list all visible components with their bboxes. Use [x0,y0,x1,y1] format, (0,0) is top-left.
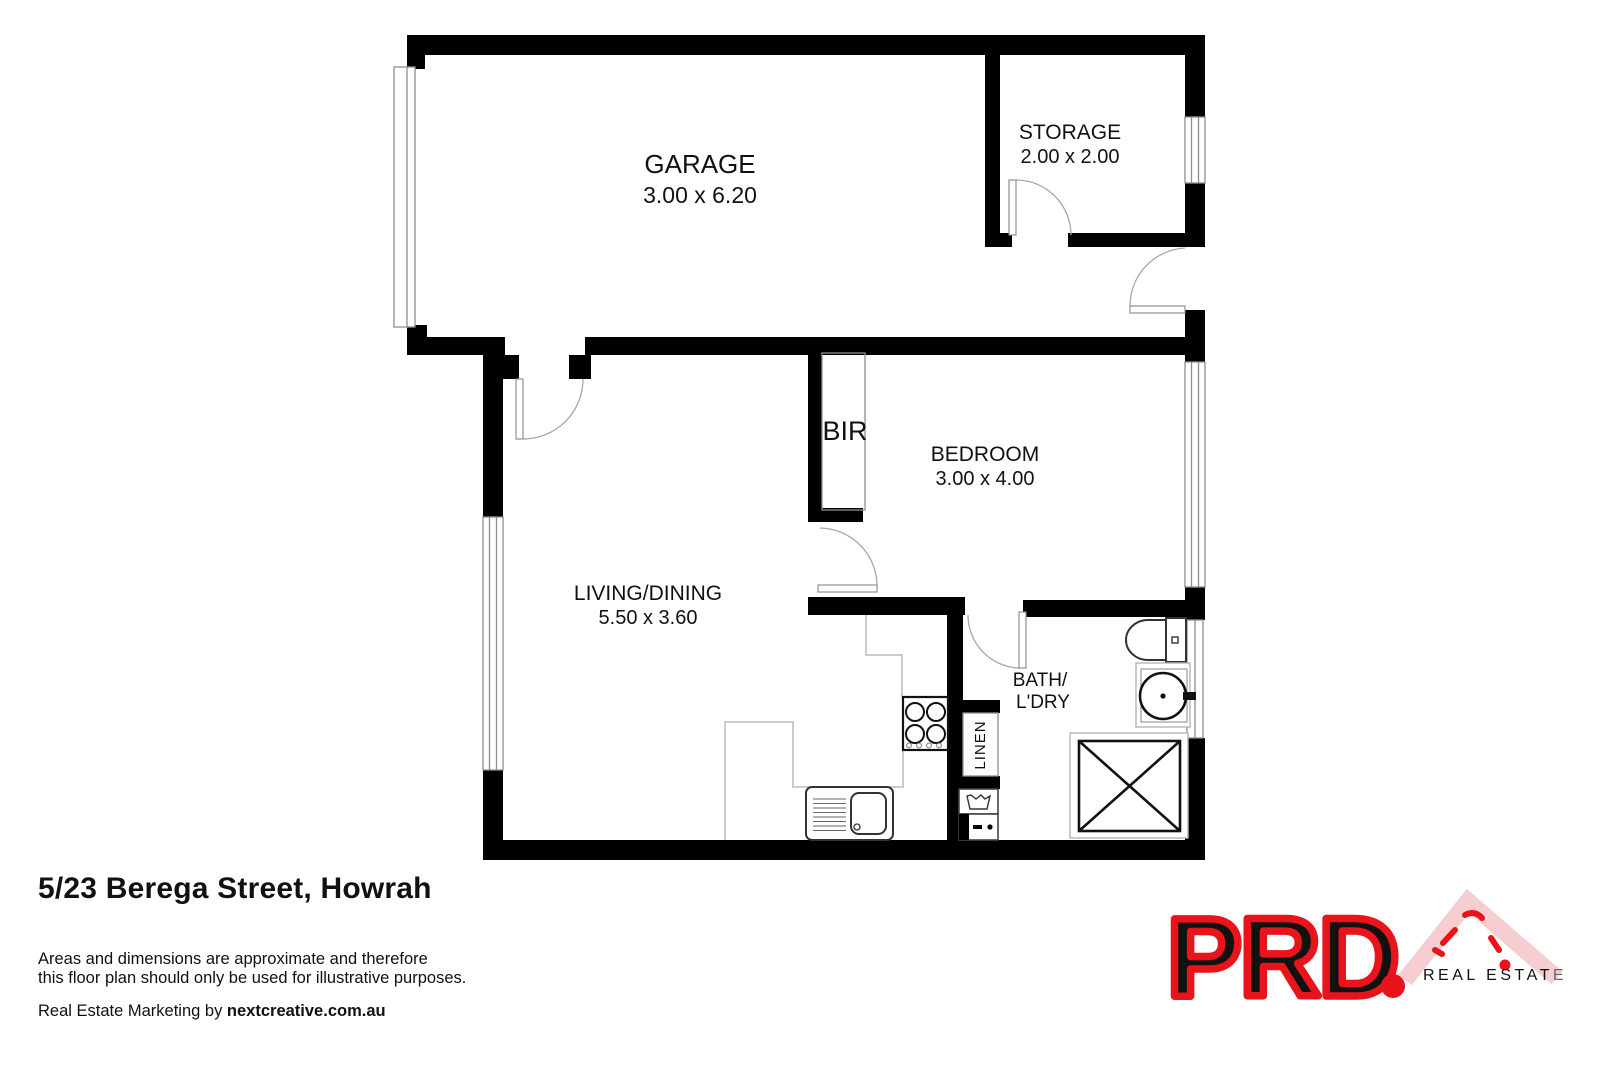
bath-label-line1: BATH/ [1013,670,1068,691]
storage-window [1185,117,1205,183]
laundry-trough-icon [959,789,998,814]
toilet-icon [1126,618,1186,662]
wall-divider-right [585,337,1205,355]
garage-door [394,67,415,327]
marketing-credit: Real Estate Marketing by nextcreative.co… [38,1002,598,1021]
cooktop-icon [903,697,948,750]
bedroom-window [1185,362,1205,587]
prd-logo: PRD REAL ESTATE [1165,888,1585,1028]
logo-tagline: REAL ESTATE [1423,967,1567,984]
marketing-brand: nextcreative.com.au [227,1002,386,1020]
entry-door [1130,248,1185,313]
shower-icon [1070,733,1188,838]
room-labels: GARAGE 3.00 x 6.20 STORAGE 2.00 x 2.00 B… [574,121,1121,770]
garage-label: GARAGE [644,149,755,179]
storage-door [1009,180,1071,235]
living-dims: 5.50 x 3.60 [599,607,698,629]
storage-label: STORAGE [1019,121,1121,144]
prd-logo-dot [1381,974,1405,998]
floorplan-page: GARAGE 3.00 x 6.20 STORAGE 2.00 x 2.00 B… [0,0,1600,1067]
wall-right-1 [1185,35,1205,117]
wall-living-door-jamb-right [569,355,591,379]
disclaimer: Areas and dimensions are approximate and… [38,950,598,988]
living-door [516,379,583,439]
sink-icon [806,787,893,840]
bedroom-label: BEDROOM [931,443,1040,466]
living-label: LIVING/DINING [574,582,722,605]
wall-living-left-top [483,348,503,517]
wall-bottom [483,840,1205,860]
storage-dims: 2.00 x 2.00 [1021,146,1120,168]
disclaimer-line2: this floor plan should only be used for … [38,969,598,988]
disclaimer-line1: Areas and dimensions are approximate and… [38,950,598,969]
wall-storage-left [985,55,1000,245]
wc-icon [959,814,998,840]
footer-info: 5/23 Berega Street, Howrah Areas and dim… [38,872,598,1021]
agency-logo: PRD REAL ESTATE [1165,888,1585,1028]
wall-living-door-jamb-left [503,355,519,379]
bedroom-door [818,528,877,592]
wall-right-3 [1185,310,1205,362]
bath-label-line2: L'DRY [1016,692,1070,713]
wall-linen-bottom [963,776,1000,789]
wall-storage-bottom-right [1068,233,1185,247]
wall-storage-bottom-left [985,233,1012,247]
marketing-prefix: Real Estate Marketing by [38,1002,227,1020]
prd-logo-text: PRD [1167,895,1397,1020]
wall-right-2 [1185,183,1205,247]
logo-tagline-last: E [1553,967,1567,984]
wall-right-4 [1185,587,1205,620]
living-window [483,517,503,770]
linen-label: LINEN [972,720,989,769]
garage-dims: 3.00 x 6.20 [643,182,757,208]
bedroom-dims: 3.00 x 4.00 [936,468,1035,490]
basin-icon [1136,663,1196,727]
logo-tagline-main: REAL ESTAT [1423,967,1553,984]
bir-label: BIR [822,416,867,446]
wall-bedroom-bottom [1023,600,1185,617]
wall-bir [808,337,822,522]
page-title: 5/23 Berega Street, Howrah [38,872,598,906]
wall-top [407,35,1205,55]
wall-bedroom-kitchen [808,597,965,615]
wall-linen-top [963,700,1000,713]
bath-door [968,612,1026,668]
